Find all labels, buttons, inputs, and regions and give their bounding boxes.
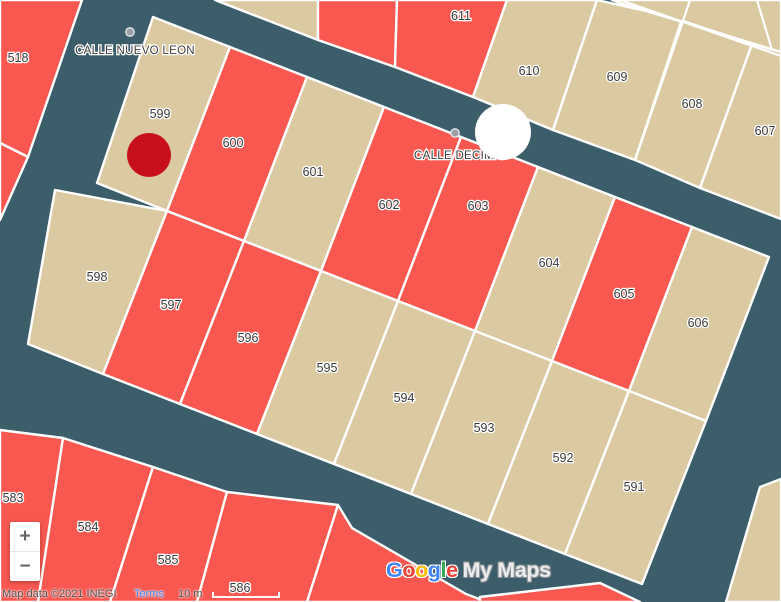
terms-link[interactable]: Terms xyxy=(134,588,164,600)
white-circle-marker[interactable] xyxy=(475,104,531,160)
parcel-label-602: 602 xyxy=(379,198,400,212)
parcel-label-518: 518 xyxy=(8,51,29,65)
attribution-bar: Map data ©2021 INEGI Terms 10 m xyxy=(0,585,781,602)
waypoint-dot-icon xyxy=(451,129,459,137)
parcel-label-583: 583 xyxy=(3,491,24,505)
parcel-label-599: 599 xyxy=(150,107,171,121)
parcel-label-598: 598 xyxy=(87,270,108,284)
scale-bar xyxy=(212,592,280,598)
parcel-label-591: 591 xyxy=(624,480,645,494)
parcel-label-594: 594 xyxy=(394,391,415,405)
street-label-calle-nuevo-leon: CALLE NUEVO LEON xyxy=(75,45,195,57)
parcel-label-605: 605 xyxy=(614,287,635,301)
parcel-label-603: 603 xyxy=(468,199,489,213)
parcel-label-601: 601 xyxy=(303,165,324,179)
parcel-label-593: 593 xyxy=(474,421,495,435)
parcel-label-592: 592 xyxy=(553,451,574,465)
waypoint-dot-icon xyxy=(126,28,134,36)
parcel-label-610: 610 xyxy=(519,64,540,78)
parcel-label-600: 600 xyxy=(223,136,244,150)
parcel-label-585: 585 xyxy=(158,553,179,567)
google-logo[interactable]: Google xyxy=(386,558,458,582)
map-canvas: CALLE NUEVO LEON CALLE DECIMA 518 583 58… xyxy=(0,0,781,602)
map-data-attribution: Map data ©2021 INEGI xyxy=(2,588,117,600)
parcel-label-584: 584 xyxy=(78,520,99,534)
scale-label: 10 m xyxy=(178,588,202,600)
map-viewport[interactable]: CALLE NUEVO LEON CALLE DECIMA 518 583 58… xyxy=(0,0,781,602)
parcel-label-595: 595 xyxy=(317,361,338,375)
parcel-label-606: 606 xyxy=(688,316,709,330)
parcel-label-609: 609 xyxy=(607,70,628,84)
google-my-maps-watermark: GoogleMy Maps xyxy=(386,558,551,583)
parcel-label-607: 607 xyxy=(755,124,776,138)
parcel-label-611: 611 xyxy=(451,9,471,23)
red-circle-marker[interactable] xyxy=(127,133,171,177)
zoom-out-button[interactable]: − xyxy=(10,551,40,581)
parcel-label-604: 604 xyxy=(539,256,560,270)
my-maps-label: My Maps xyxy=(463,558,551,582)
parcel-label-597: 597 xyxy=(161,298,182,312)
parcel-label-608: 608 xyxy=(682,97,703,111)
zoom-in-button[interactable]: + xyxy=(10,522,40,551)
zoom-control: + − xyxy=(10,522,40,581)
parcel-label-596: 596 xyxy=(238,331,259,345)
